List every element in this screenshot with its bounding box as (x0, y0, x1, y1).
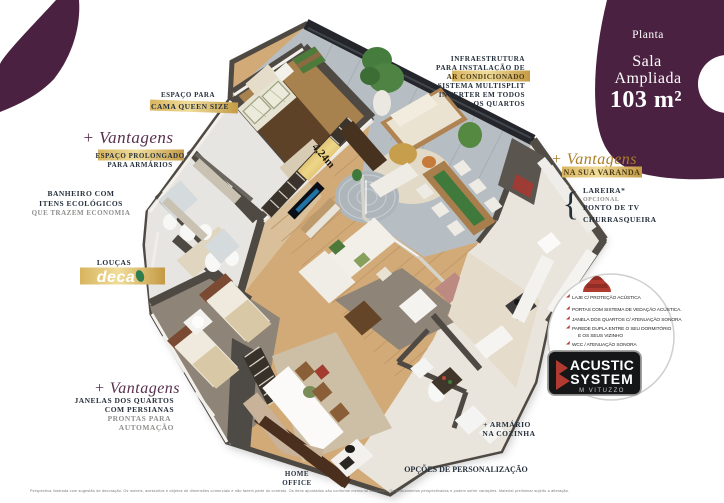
svg-text:PORTAS COM SISTEMA DE VEDAÇÃO: PORTAS COM SISTEMA DE VEDAÇÃO ACÚSTICA. (572, 306, 681, 313)
svg-text:PAREDE DUPLA ENTRE O SEU DORMI: PAREDE DUPLA ENTRE O SEU DORMITÓRIO (572, 325, 672, 332)
svg-text:+ ARMÁRIO: + ARMÁRIO (483, 419, 531, 429)
svg-text:{: { (563, 186, 580, 223)
svg-text:PRONTAS PARA: PRONTAS PARA (108, 414, 172, 423)
svg-text:ESPAÇO PROLONGADO: ESPAÇO PROLONGADO (95, 152, 184, 160)
svg-text:Planta: Planta (632, 29, 664, 41)
svg-text:QUE TRAZEM ECONOMIA: QUE TRAZEM ECONOMIA (32, 209, 131, 217)
svg-text:ESPAÇO PARA: ESPAÇO PARA (161, 91, 215, 99)
svg-text:+ Vantagens: + Vantagens (94, 380, 180, 397)
svg-text:SYSTEM: SYSTEM (570, 371, 634, 387)
svg-text:103 m²: 103 m² (610, 87, 682, 113)
svg-text:NA SUA VARANDA: NA SUA VARANDA (564, 168, 641, 177)
svg-text:Ampliada: Ampliada (614, 70, 681, 87)
svg-text:deca: deca (97, 269, 135, 286)
svg-text:HOME: HOME (285, 470, 309, 478)
svg-text:M VITUZZO: M VITUZZO (579, 388, 625, 394)
svg-text:AUTOMAÇÃO: AUTOMAÇÃO (119, 423, 174, 432)
svg-text:INFRAESTRUTURA: INFRAESTRUTURA (451, 55, 525, 63)
svg-text:AR CONDICIONADO: AR CONDICIONADO (447, 73, 525, 81)
svg-text:BANHEIRO COM: BANHEIRO COM (47, 189, 114, 198)
svg-text:WCC / ATENUAÇÃO SONORA: WCC / ATENUAÇÃO SONORA (572, 341, 638, 348)
svg-text:SISTEMA MULTISPLIT: SISTEMA MULTISPLIT (438, 82, 525, 90)
svg-text:Perspectiva ilustrada com suge: Perspectiva ilustrada com sugestão de de… (30, 489, 569, 493)
svg-text:LOUÇAS: LOUÇAS (97, 258, 131, 267)
svg-text:LAREIRA*: LAREIRA* (583, 186, 625, 195)
svg-text:JANELAS DOS QUARTOS: JANELAS DOS QUARTOS (74, 396, 174, 405)
svg-text:Sala: Sala (632, 53, 662, 70)
svg-text:ITENS ECOLÓGICOS: ITENS ECOLÓGICOS (39, 198, 123, 208)
svg-text:PARA ARMÁRIOS: PARA ARMÁRIOS (107, 161, 172, 169)
svg-text:JANELA DOS QUARTOS C/ ATENUAÇÃ: JANELA DOS QUARTOS C/ ATENUAÇÃO SONORA (572, 316, 682, 323)
svg-text:PONTO DE TV: PONTO DE TV (583, 203, 640, 212)
svg-text:OS QUARTOS: OS QUARTOS (473, 100, 525, 108)
svg-text:COM PERSIANAS: COM PERSIANAS (105, 405, 174, 414)
svg-text:E OS SEUS VIZINHO: E OS SEUS VIZINHO (578, 333, 623, 339)
svg-text:LAJE C/ PROTEÇÃO ACÚSTICA: LAJE C/ PROTEÇÃO ACÚSTICA (572, 294, 642, 301)
svg-text:INVERTER EM TODOS: INVERTER EM TODOS (439, 91, 525, 99)
svg-text:+ Vantagens: + Vantagens (82, 128, 173, 147)
svg-text:CHURRASQUEIRA: CHURRASQUEIRA (583, 215, 657, 224)
svg-text:OFFICE: OFFICE (282, 479, 311, 487)
svg-text:+ Vantagens: + Vantagens (551, 151, 637, 168)
svg-text:OPÇÕES DE PERSONALIZAÇÃO: OPÇÕES DE PERSONALIZAÇÃO (404, 464, 528, 474)
svg-text:CAMA QUEEN SIZE: CAMA QUEEN SIZE (151, 102, 229, 111)
svg-text:NA COZINHA: NA COZINHA (482, 429, 535, 438)
